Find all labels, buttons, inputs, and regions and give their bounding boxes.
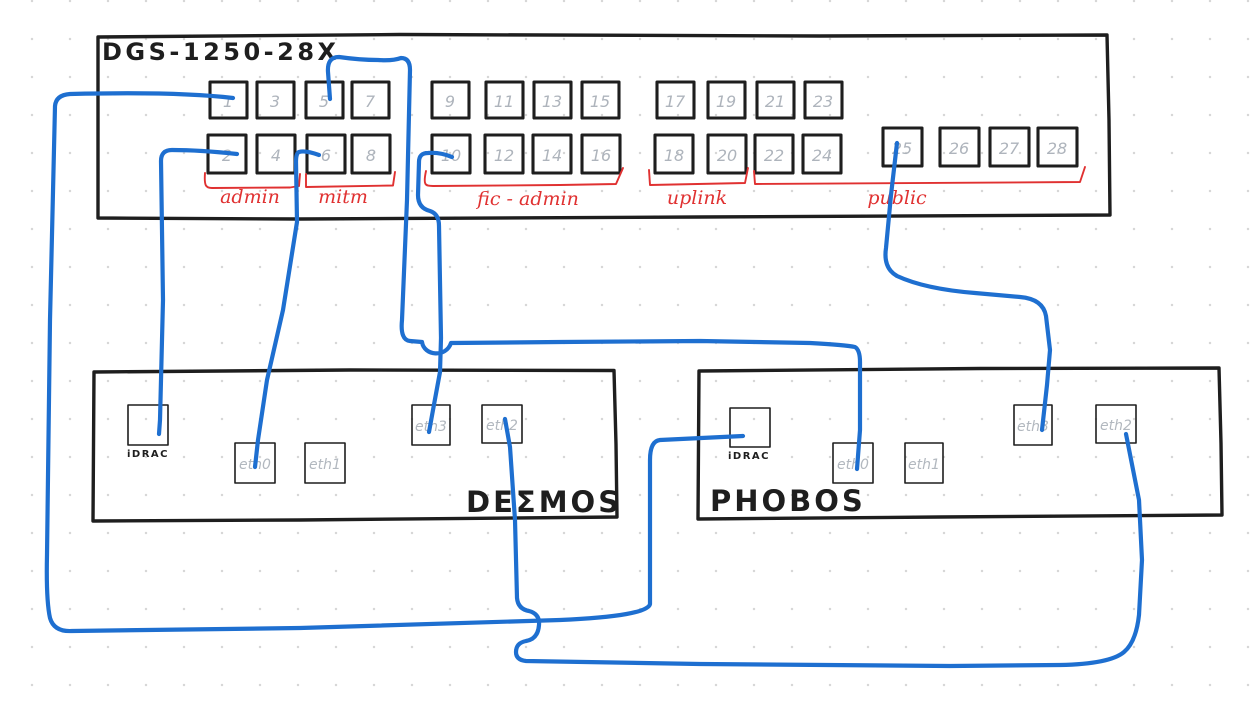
deimos-port-eth2[interactable]: eth2 (482, 405, 522, 443)
switch-port-19-label: 19 (716, 92, 736, 111)
switch-port-28-label: 28 (1047, 139, 1067, 158)
switch-port-7-label: 7 (365, 92, 376, 111)
switch-port-12[interactable]: 12 (485, 135, 523, 173)
whiteboard-canvas[interactable]: DGS-1250-28X 1 3 5 7 9 11 13 15 17 19 21… (0, 0, 1256, 703)
drawing-canvas[interactable]: DGS-1250-28X 1 3 5 7 9 11 13 15 17 19 21… (0, 0, 1256, 703)
switch-port-13[interactable]: 13 (534, 82, 571, 118)
cable-port10-deimos-eth3[interactable] (418, 153, 452, 432)
switch-port-22-label: 22 (764, 146, 784, 165)
deimos-eth1-label: eth1 (309, 457, 341, 473)
switch-port-4-label: 4 (271, 146, 281, 165)
switch-port-18-label: 18 (664, 146, 684, 165)
switch-port-17-label: 17 (665, 92, 686, 111)
deimos-port-eth1[interactable]: eth1 (305, 443, 345, 483)
switch-port-1-label: 1 (223, 92, 233, 111)
switch-port-22[interactable]: 22 (755, 135, 793, 173)
switch-port-23-label: 23 (813, 92, 833, 111)
switch-port-4[interactable]: 4 (257, 135, 295, 173)
switch-port-19[interactable]: 19 (708, 82, 745, 118)
switch-port-13-label: 13 (542, 92, 562, 111)
switch-port-15-label: 15 (590, 92, 610, 111)
switch-port-3-label: 3 (270, 92, 280, 111)
switch-port-1[interactable]: 1 (210, 82, 247, 118)
switch-port-14-label: 14 (542, 146, 562, 165)
switch-port-24-label: 24 (812, 146, 832, 165)
switch-port-20-label: 20 (717, 146, 737, 165)
switch-port-17[interactable]: 17 (657, 82, 694, 118)
deimos-port-idrac[interactable]: iDRAC (127, 405, 169, 460)
switch-port-16-label: 16 (591, 146, 611, 165)
switch-port-8[interactable]: 8 (352, 135, 390, 173)
switch-port-25[interactable]: 25 (883, 128, 922, 166)
group-label-uplink[interactable]: uplink (667, 187, 727, 209)
switch-port-11[interactable]: 11 (486, 82, 523, 118)
phobos-eth1-label: eth1 (908, 457, 940, 473)
deimos-eth2-label: eth2 (486, 418, 518, 434)
switch-port-12-label: 12 (494, 146, 514, 165)
switch-port-20[interactable]: 20 (708, 135, 746, 173)
switch-port-21-label: 21 (765, 92, 785, 111)
phobos-eth2-label: eth2 (1100, 418, 1132, 434)
switch-port-5-label: 5 (319, 92, 329, 111)
server-phobos-name[interactable]: PHOBOS (710, 484, 866, 518)
switch-port-5[interactable]: 5 (306, 82, 343, 118)
group-bracket-uplink[interactable] (649, 168, 748, 185)
switch-port-9-label: 9 (445, 92, 455, 111)
switch-port-11-label: 11 (494, 92, 514, 111)
switch-port-3[interactable]: 3 (257, 82, 294, 118)
switch-port-27-label: 27 (999, 139, 1020, 158)
phobos-port-eth3[interactable]: eth3 (1014, 405, 1052, 445)
switch-port-23[interactable]: 23 (805, 82, 842, 118)
group-label-fic-admin[interactable]: fic - admin (475, 188, 579, 210)
switch-port-18[interactable]: 18 (655, 135, 693, 173)
switch-port-21[interactable]: 21 (757, 82, 794, 118)
group-label-public[interactable]: public (867, 187, 927, 209)
switch-port-24[interactable]: 24 (803, 135, 841, 173)
switch-port-9[interactable]: 9 (432, 82, 469, 118)
switch-port-7[interactable]: 7 (352, 82, 389, 118)
switch-port-16[interactable]: 16 (582, 135, 620, 173)
phobos-port-eth1[interactable]: eth1 (905, 443, 943, 483)
switch-port-8-label: 8 (366, 146, 376, 165)
group-label-admin[interactable]: admin (220, 186, 280, 208)
phobos-port-eth0[interactable]: eth0 (833, 443, 873, 483)
switch-port-15[interactable]: 15 (582, 82, 619, 118)
switch-port-26-label: 26 (949, 139, 969, 158)
switch-port-26[interactable]: 26 (940, 128, 979, 166)
switch-port-28[interactable]: 28 (1038, 128, 1077, 166)
phobos-idrac-label: iDRAC (728, 451, 770, 462)
cable-deimos-eth2-phobos-eth2[interactable] (505, 419, 1142, 666)
phobos-port-eth2[interactable]: eth2 (1096, 405, 1136, 443)
switch-port-14[interactable]: 14 (533, 135, 571, 173)
server-deimos-name[interactable]: DEΣMOS (466, 485, 622, 519)
switch-port-6-label: 6 (321, 146, 331, 165)
switch-port-2-label: 2 (222, 146, 232, 165)
phobos-eth0-label: eth0 (837, 457, 869, 473)
switch-title[interactable]: DGS-1250-28X (102, 38, 340, 66)
switch-port-27[interactable]: 27 (990, 128, 1029, 166)
deimos-idrac-label: iDRAC (127, 449, 169, 460)
phobos-idrac-box[interactable] (730, 408, 770, 447)
group-label-mitm[interactable]: mitm (318, 186, 368, 208)
